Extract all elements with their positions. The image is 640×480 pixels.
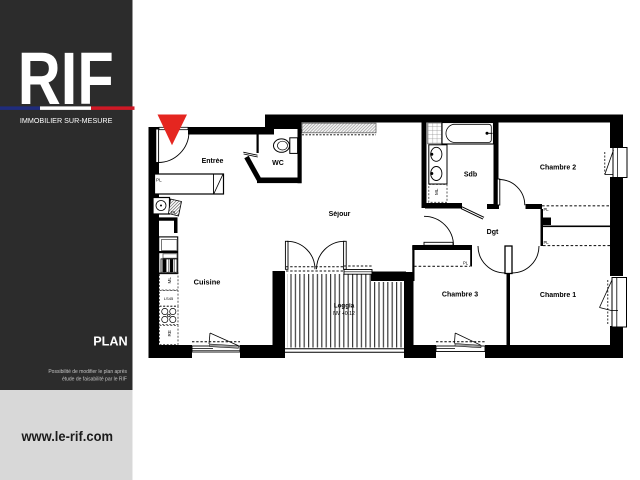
svg-text:WC: WC	[272, 160, 284, 167]
svg-text:LS45: LS45	[164, 296, 174, 301]
svg-text:Possibilité de modifier le pla: Possibilité de modifier le plan après	[48, 369, 127, 375]
svg-text:PL: PL	[156, 178, 162, 183]
svg-text:PL: PL	[463, 261, 469, 266]
svg-text:Chambre 2: Chambre 2	[540, 165, 576, 172]
svg-text:Loggia: Loggia	[334, 303, 355, 310]
svg-text:PL: PL	[544, 240, 550, 245]
svg-text:PL: PL	[544, 207, 550, 212]
svg-text:Dgt: Dgt	[487, 229, 499, 236]
svg-text:PL: PL	[171, 210, 177, 215]
svg-text:Entrée: Entrée	[202, 158, 224, 165]
svg-text:Sdb: Sdb	[464, 172, 477, 179]
svg-text:Chambre 1: Chambre 1	[540, 292, 576, 299]
svg-text:Cuisine: Cuisine	[194, 278, 221, 287]
svg-text:étude de faisabilité par le RI: étude de faisabilité par le RIF	[62, 377, 127, 383]
svg-text:PLAN: PLAN	[93, 334, 128, 349]
svg-text:www.le-rif.com: www.le-rif.com	[21, 428, 113, 444]
svg-text:Séjour: Séjour	[329, 211, 351, 218]
svg-text:Chambre 3: Chambre 3	[442, 292, 478, 299]
svg-text:IMMOBILIER SUR-MESURE: IMMOBILIER SUR-MESURE	[20, 118, 113, 125]
svg-text:RE: RE	[167, 330, 172, 336]
svg-text:ML: ML	[434, 188, 439, 195]
svg-text:ML: ML	[167, 277, 172, 284]
svg-text:NV +0.12: NV +0.12	[333, 311, 355, 317]
